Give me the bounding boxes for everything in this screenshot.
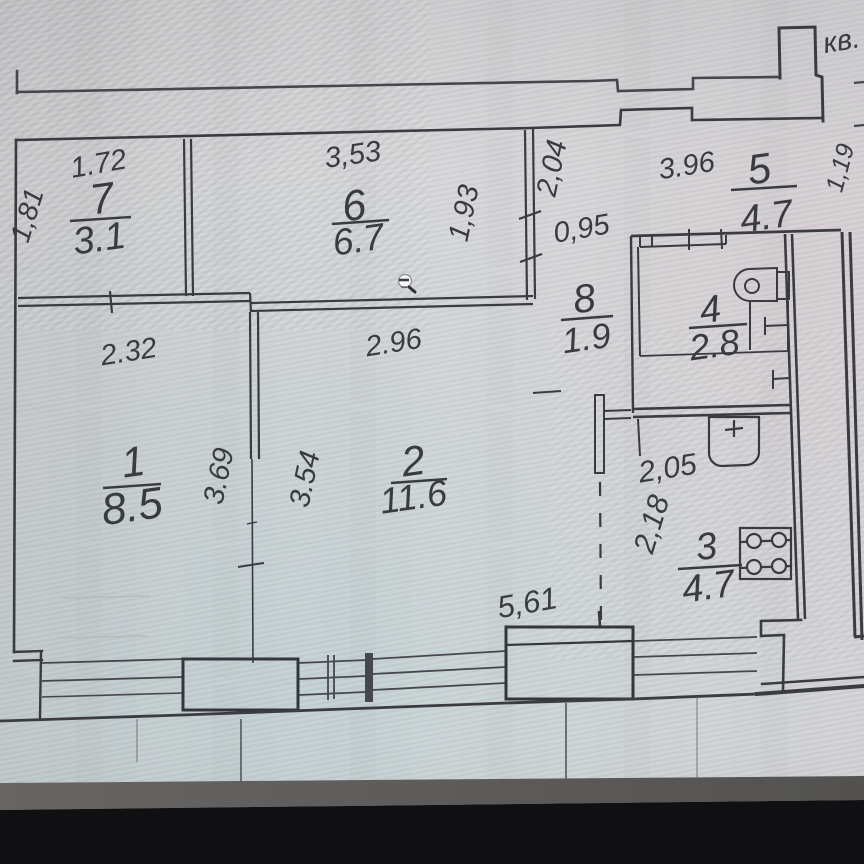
- svg-text:2.8: 2.8: [686, 321, 742, 369]
- svg-text:3.1: 3.1: [70, 215, 128, 264]
- svg-text:8.5: 8.5: [98, 478, 166, 535]
- svg-text:6.7: 6.7: [330, 216, 388, 264]
- svg-text:4.7: 4.7: [679, 562, 739, 611]
- svg-text:4.7: 4.7: [737, 192, 797, 241]
- svg-text:1.9: 1.9: [560, 316, 614, 361]
- svg-text:кв.: кв.: [820, 22, 862, 60]
